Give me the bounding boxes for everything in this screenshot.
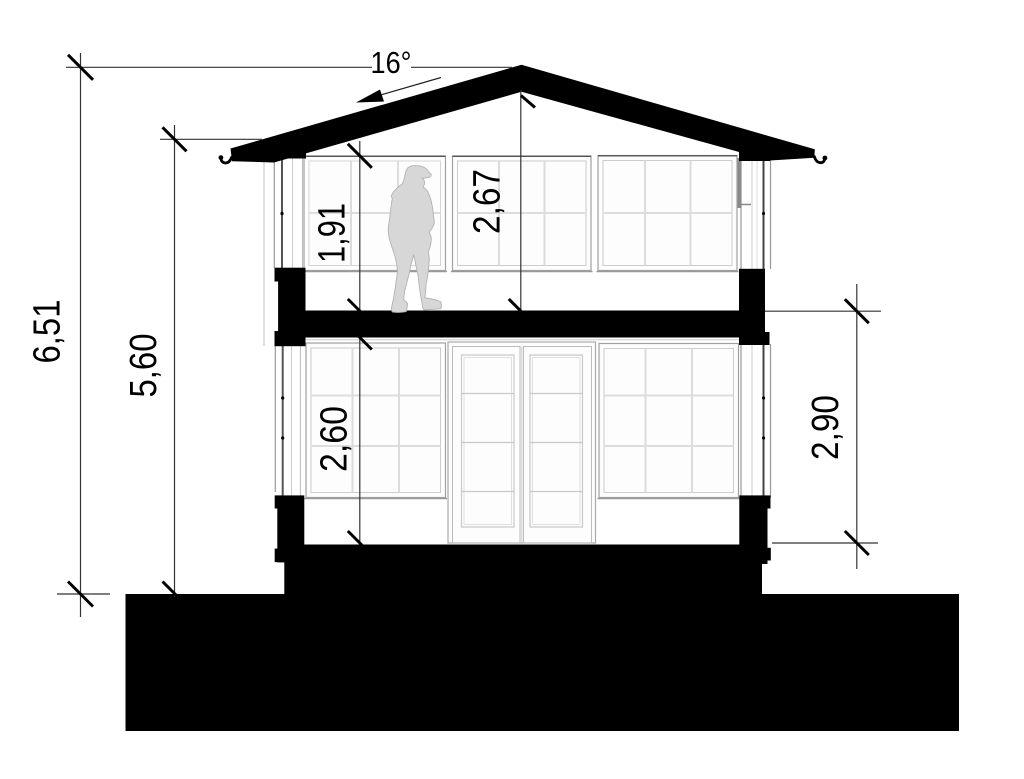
svg-text:6,51: 6,51 bbox=[27, 300, 69, 364]
svg-text:1,91: 1,91 bbox=[312, 203, 354, 263]
svg-text:2,90: 2,90 bbox=[805, 395, 847, 460]
svg-text:16°: 16° bbox=[371, 45, 412, 80]
svg-text:2,67: 2,67 bbox=[467, 169, 509, 234]
svg-text:2,60: 2,60 bbox=[314, 406, 356, 472]
svg-text:5,60: 5,60 bbox=[123, 334, 165, 398]
